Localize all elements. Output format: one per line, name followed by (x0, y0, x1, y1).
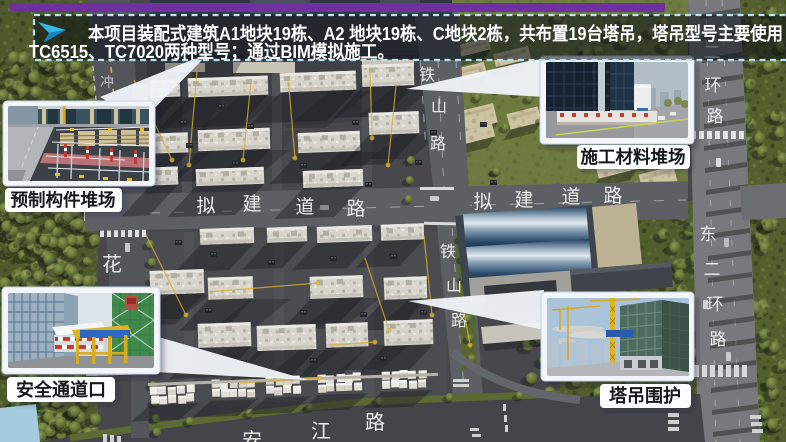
svg-text:东: 东 (700, 225, 717, 244)
svg-text:路: 路 (710, 330, 727, 349)
svg-text:路: 路 (365, 411, 385, 434)
svg-text:铁: 铁 (419, 66, 435, 84)
svg-text:路: 路 (346, 198, 365, 220)
svg-text:路: 路 (451, 312, 467, 330)
svg-text:山: 山 (431, 98, 447, 116)
svg-text:冲: 冲 (100, 74, 114, 90)
svg-text:环: 环 (705, 76, 722, 95)
svg-text:TC6515、TC7020两种型号；通过BIM模拟施工。: TC6515、TC7020两种型号；通过BIM模拟施工。 (29, 41, 394, 62)
svg-text:铁: 铁 (440, 243, 456, 261)
svg-text:建: 建 (514, 189, 533, 211)
svg-text:花: 花 (102, 253, 122, 276)
svg-text:二: 二 (704, 260, 721, 279)
svg-text:路: 路 (707, 107, 724, 126)
svg-text:道: 道 (295, 196, 314, 218)
svg-text:预制构件堆场: 预制构件堆场 (11, 190, 116, 210)
svg-text:江: 江 (311, 420, 331, 442)
svg-text:安全通道口: 安全通道口 (16, 379, 106, 400)
svg-text:拟: 拟 (473, 191, 492, 213)
svg-text:本项目装配式建筑A1地块19栋、A2 地块19栋、C地块2栋: 本项目装配式建筑A1地块19栋、A2 地块19栋、C地块2栋，共布置19台塔吊，… (88, 23, 783, 44)
svg-text:塔吊围护: 塔吊围护 (609, 385, 681, 406)
svg-text:拟: 拟 (196, 195, 215, 217)
svg-text:安: 安 (242, 429, 262, 442)
svg-text:道: 道 (561, 186, 580, 208)
svg-text:山: 山 (446, 277, 462, 295)
svg-text:路: 路 (430, 135, 446, 153)
svg-text:建: 建 (242, 193, 261, 215)
svg-text:环: 环 (707, 295, 724, 314)
svg-text:路: 路 (603, 185, 622, 207)
svg-text:施工材料堆场: 施工材料堆场 (581, 147, 686, 167)
